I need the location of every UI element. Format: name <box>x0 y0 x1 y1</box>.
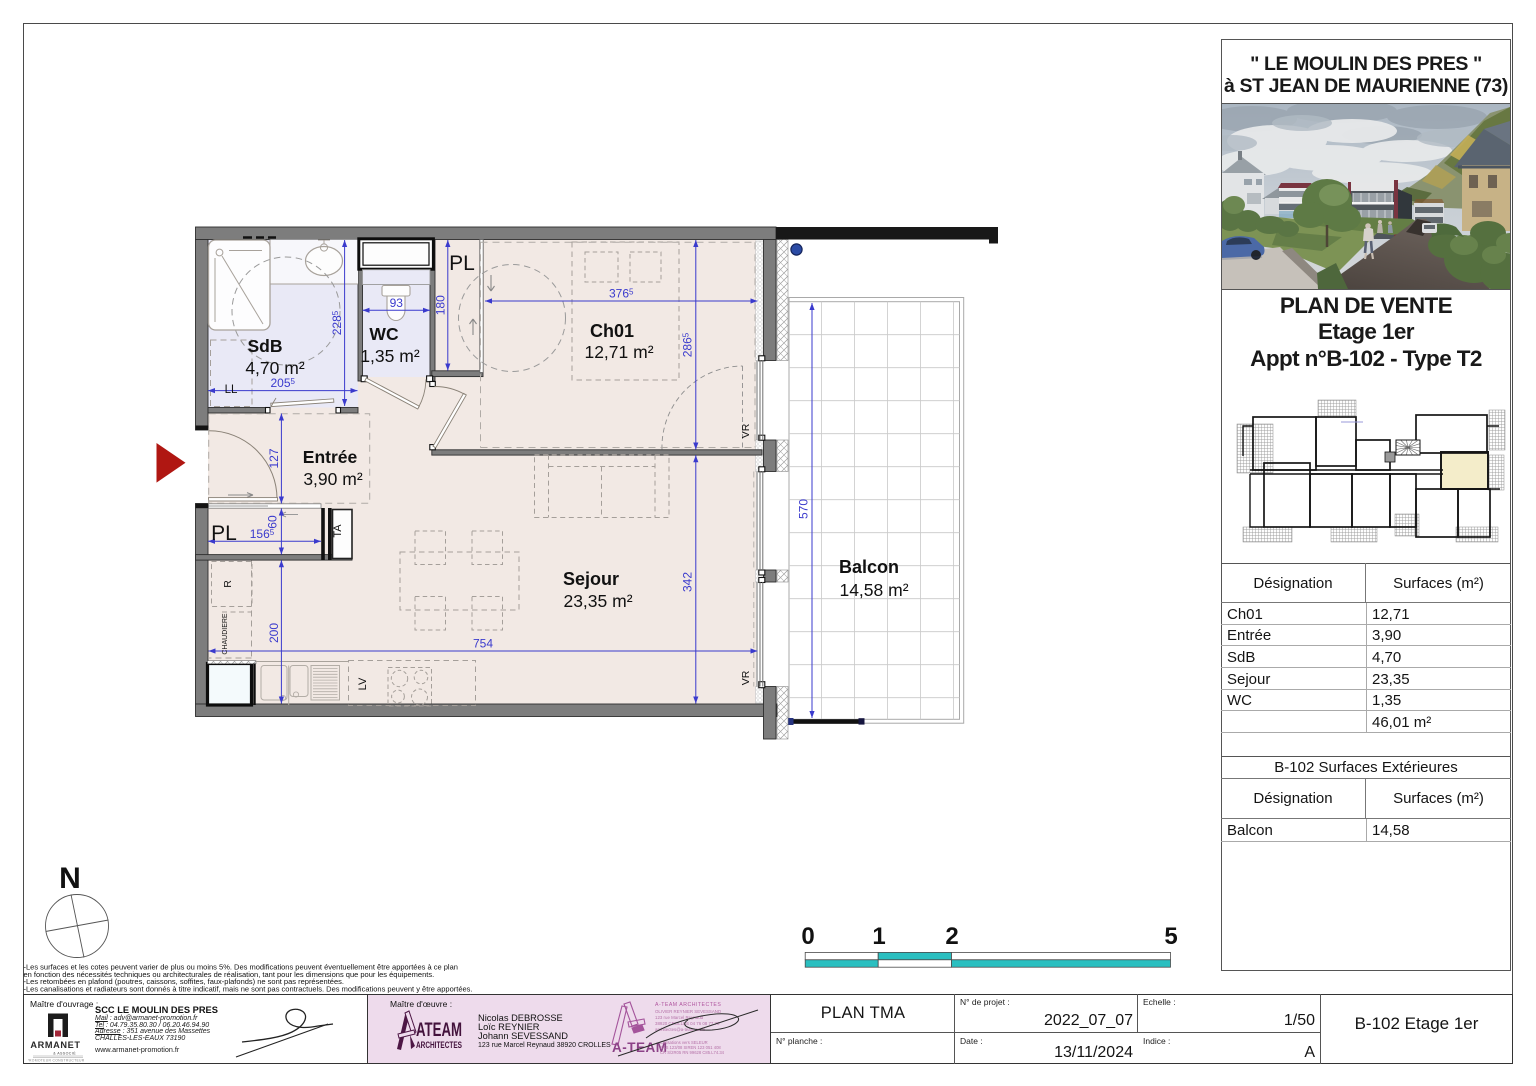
svg-text:1: 1 <box>872 923 885 950</box>
svg-text:PL: PL <box>211 522 237 545</box>
svg-text:R: R <box>222 580 234 588</box>
svg-text:CHAUDIERE: CHAUDIERE <box>222 613 229 655</box>
svg-text:ATEAM: ATEAM <box>416 1019 462 1041</box>
svg-text:Balcon: Balcon <box>839 557 899 577</box>
svg-text:WC: WC <box>369 324 399 344</box>
svg-text:1,35 m²: 1,35 m² <box>360 346 419 366</box>
svg-text:200: 200 <box>267 623 281 643</box>
svg-text:ARCHITECTES: ARCHITECTES <box>416 1040 462 1051</box>
svg-text:4,70 m²: 4,70 m² <box>245 358 304 378</box>
svg-text:LL: LL <box>225 384 238 396</box>
svg-text:N: N <box>59 862 81 895</box>
svg-text:5: 5 <box>1164 923 1177 950</box>
svg-text:LV: LV <box>357 677 369 690</box>
svg-text:93: 93 <box>390 296 404 310</box>
svg-text:VR: VR <box>740 423 752 438</box>
svg-text:754: 754 <box>473 637 493 651</box>
svg-text:Entrée: Entrée <box>303 447 358 467</box>
svg-text:3,90 m²: 3,90 m² <box>303 469 362 489</box>
svg-text:Ch01: Ch01 <box>590 321 634 341</box>
svg-text:Sejour: Sejour <box>563 569 619 589</box>
svg-text:180: 180 <box>433 295 447 315</box>
svg-text:PL: PL <box>449 252 475 275</box>
svg-text:2: 2 <box>945 923 958 950</box>
svg-text:14,58 m²: 14,58 m² <box>839 580 908 600</box>
svg-text:PROMOTEUR CONSTRUCTEUR: PROMOTEUR CONSTRUCTEUR <box>28 1059 85 1063</box>
svg-text:CR S/2R05 RN 99628 C85.L74.3: CR S/2R05 RN 99628 C85.L74.34 <box>660 1050 725 1055</box>
svg-text:-Les canalisations et radiateu: -Les canalisations et radiateurs sont do… <box>24 984 473 993</box>
svg-text:A-TEAM ARCHITECTES: A-TEAM ARCHITECTES <box>655 1002 721 1008</box>
svg-text:127: 127 <box>267 448 281 468</box>
svg-text:570: 570 <box>797 499 811 519</box>
svg-text:ARMANET: ARMANET <box>30 1040 80 1050</box>
svg-text:& ASSOCIÉ: & ASSOCIÉ <box>53 1051 76 1056</box>
svg-text:TA: TA <box>332 524 344 538</box>
svg-text:12,71 m²: 12,71 m² <box>584 342 653 362</box>
svg-text:23,35 m²: 23,35 m² <box>563 591 632 611</box>
svg-text:OLIVIER REYNIER SEVESSAND: OLIVIER REYNIER SEVESSAND <box>655 1009 721 1014</box>
svg-text:0: 0 <box>801 923 814 950</box>
svg-text:VR: VR <box>740 670 752 685</box>
svg-text:SdB: SdB <box>248 336 283 356</box>
svg-text:342: 342 <box>681 572 695 592</box>
